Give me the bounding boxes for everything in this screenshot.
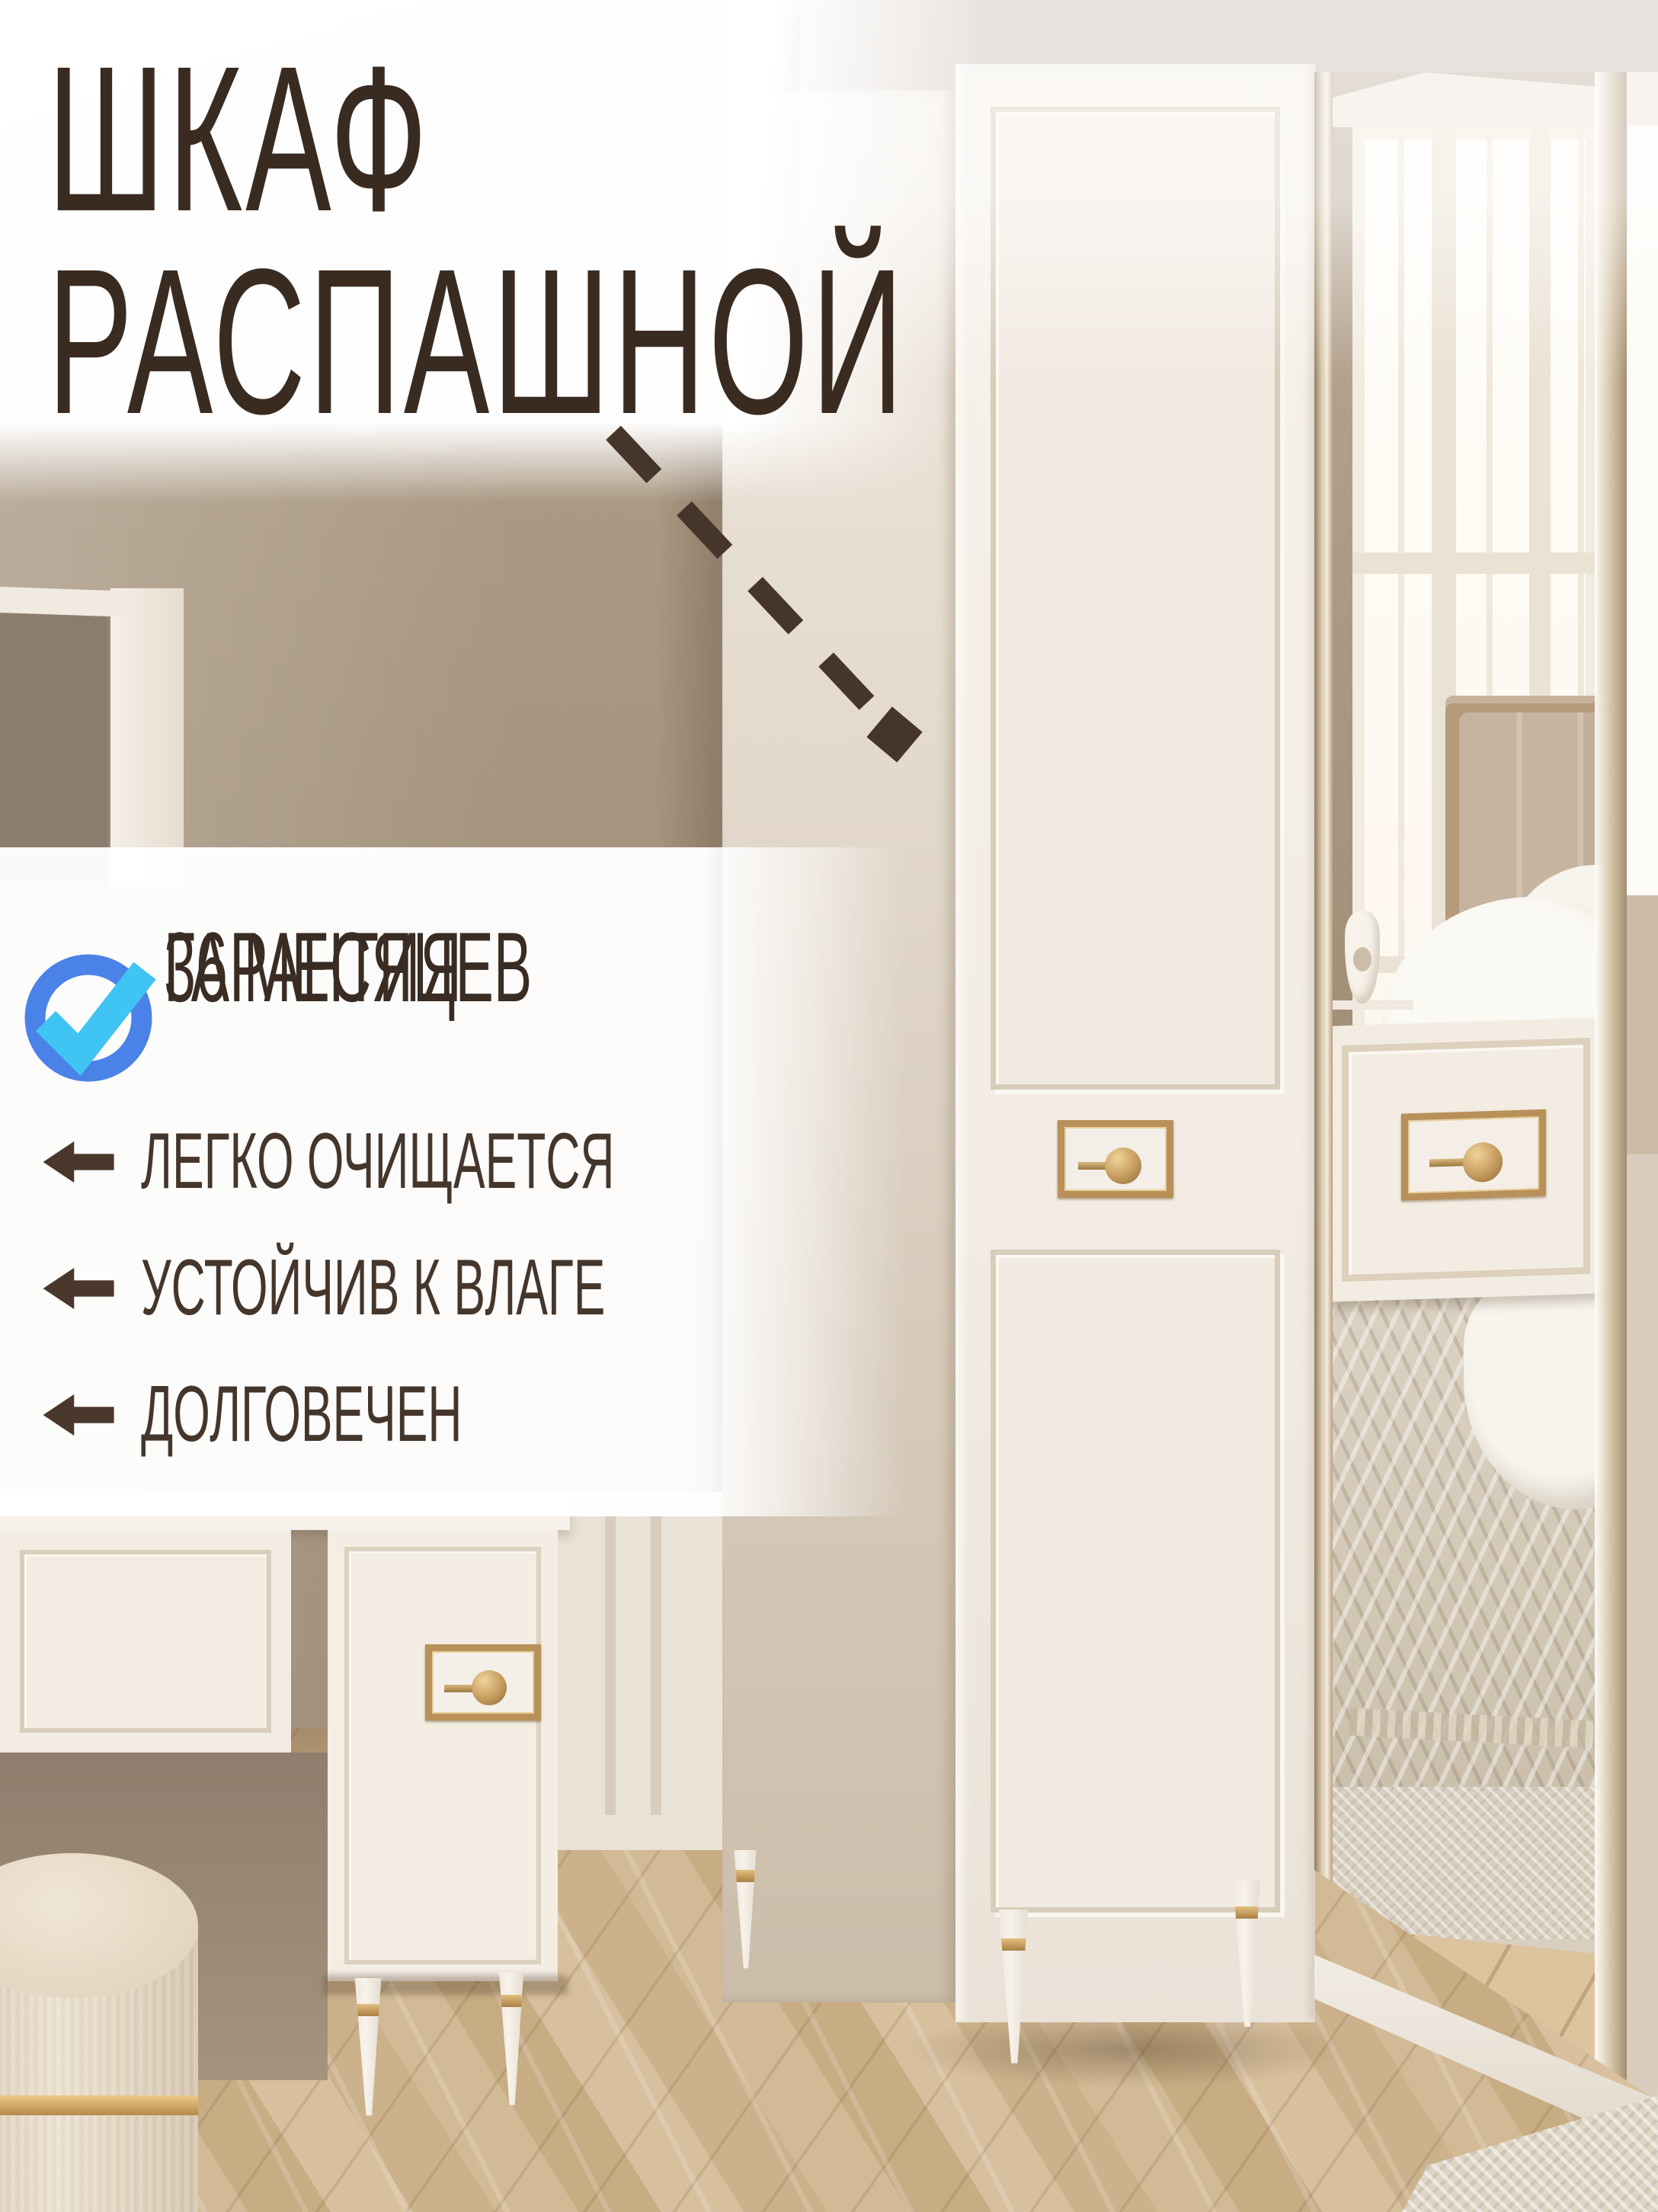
check-circle-icon [21, 946, 158, 1084]
arrow-left-icon [42, 1391, 118, 1439]
vanity-mirror-glass [0, 610, 116, 885]
vanity-door-handle [425, 1644, 541, 1721]
door-molding [344, 1547, 541, 1964]
dashed-arrow-icon [594, 418, 930, 776]
feature-row: ДОЛГОВЕЧЕН [42, 1379, 880, 1449]
product-title-text: ШКАФ [47, 35, 431, 242]
feature-label: УСТОЙЧИВ К ВЛАГЕ [141, 1253, 605, 1323]
pouf-gold-band [0, 2095, 198, 2115]
mirror-drawer-handle [1401, 1109, 1546, 1201]
pouf [0, 1853, 198, 2212]
arrow-left-icon [42, 1265, 118, 1312]
feature-label: ЛЕГКО ОЧИЩАЕТСЯ [141, 1126, 614, 1196]
feature-label: ДОЛГОВЕЧЕН [141, 1379, 462, 1449]
vanity-door [328, 1530, 558, 1981]
vanity-mirror-top [0, 587, 130, 617]
wardrobe-door-lower-panel [991, 1250, 1280, 1913]
wardrobe-door-handle [1058, 1120, 1173, 1198]
warranty-line2: 36 МЕСЯЦЕВ [164, 922, 532, 1012]
feature-row: ЛЕГКО ОЧИЩАЕТСЯ [42, 1126, 880, 1196]
handle-knob [1105, 1148, 1141, 1184]
wardrobe-floor-shadow [899, 2012, 1356, 2088]
product-title-text: РАСПАШНОЙ [47, 238, 907, 445]
paneling-groove [605, 1510, 616, 1815]
arrow-left-icon [42, 1138, 118, 1186]
feature-row: УСТОЙЧИВ К ВЛАГЕ [42, 1253, 880, 1323]
handle-knob [472, 1670, 507, 1705]
product-card: ШКАФ РАСПАШНОЙ ГАРАНТИЯ 36 МЕСЯЦЕВ ЛЕГКО… [0, 0, 1658, 2212]
drawer-molding [20, 1550, 271, 1733]
wall-paneling [550, 1492, 733, 1850]
vanity-mirror-frame [110, 588, 184, 887]
vanity-drawer [0, 1530, 291, 1753]
mirror-unit-drawer [1319, 1017, 1613, 1302]
window-transom [1352, 552, 1598, 574]
handle-knob [1463, 1141, 1503, 1183]
